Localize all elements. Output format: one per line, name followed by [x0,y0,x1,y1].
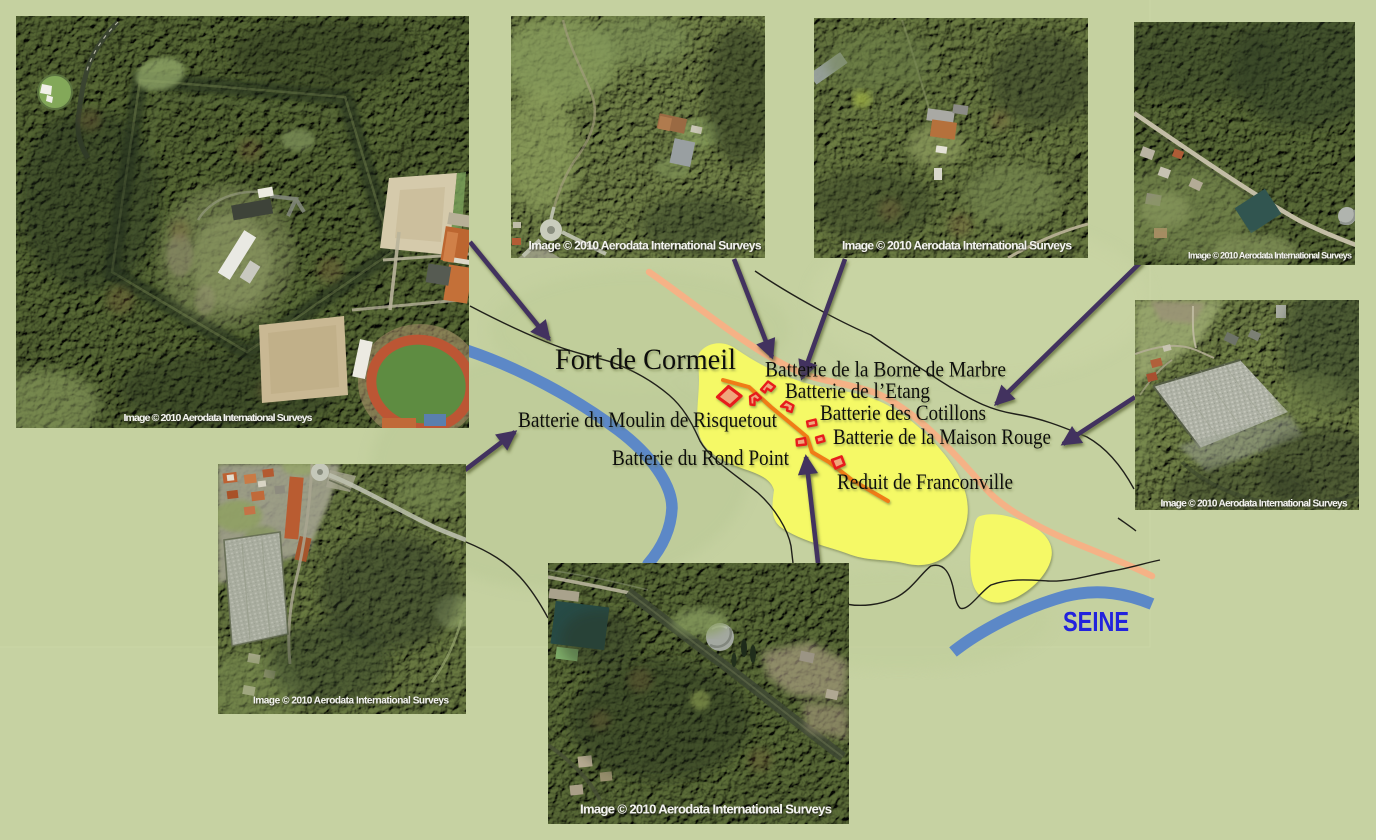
svg-text:Image © 2010 Aerodata Internat: Image © 2010 Aerodata International Surv… [253,696,449,707]
svg-text:Image © 2010 Aerodata Internat: Image © 2010 Aerodata International Surv… [1188,251,1352,261]
svg-text:Image © 2010 Aerodata Internat: Image © 2010 Aerodata International Surv… [124,412,313,424]
svg-text:Image © 2010 Aerodata Internat: Image © 2010 Aerodata International Surv… [1161,499,1348,510]
svg-text:Image © 2010 Aerodata Internat: Image © 2010 Aerodata International Surv… [529,239,762,253]
svg-text:Image © 2010 Aerodata Internat: Image © 2010 Aerodata International Surv… [580,802,832,817]
svg-text:Batterie du Moulin de Risqueto: Batterie du Moulin de Risquetout [518,407,777,432]
svg-text:SEINE: SEINE [1063,606,1129,637]
svg-text:Batterie des Cotillons: Batterie des Cotillons [820,400,986,425]
svg-text:Image © 2010 Aerodata Internat: Image © 2010 Aerodata International Surv… [842,239,1072,253]
svg-text:Batterie de la Maison Rouge: Batterie de la Maison Rouge [833,424,1051,449]
svg-text:Batterie du Rond Point: Batterie du Rond Point [612,445,789,470]
svg-text:Fort de Cormeil: Fort de Cormeil [555,343,736,376]
svg-text:Reduit de Franconville: Reduit de Franconville [837,469,1013,494]
